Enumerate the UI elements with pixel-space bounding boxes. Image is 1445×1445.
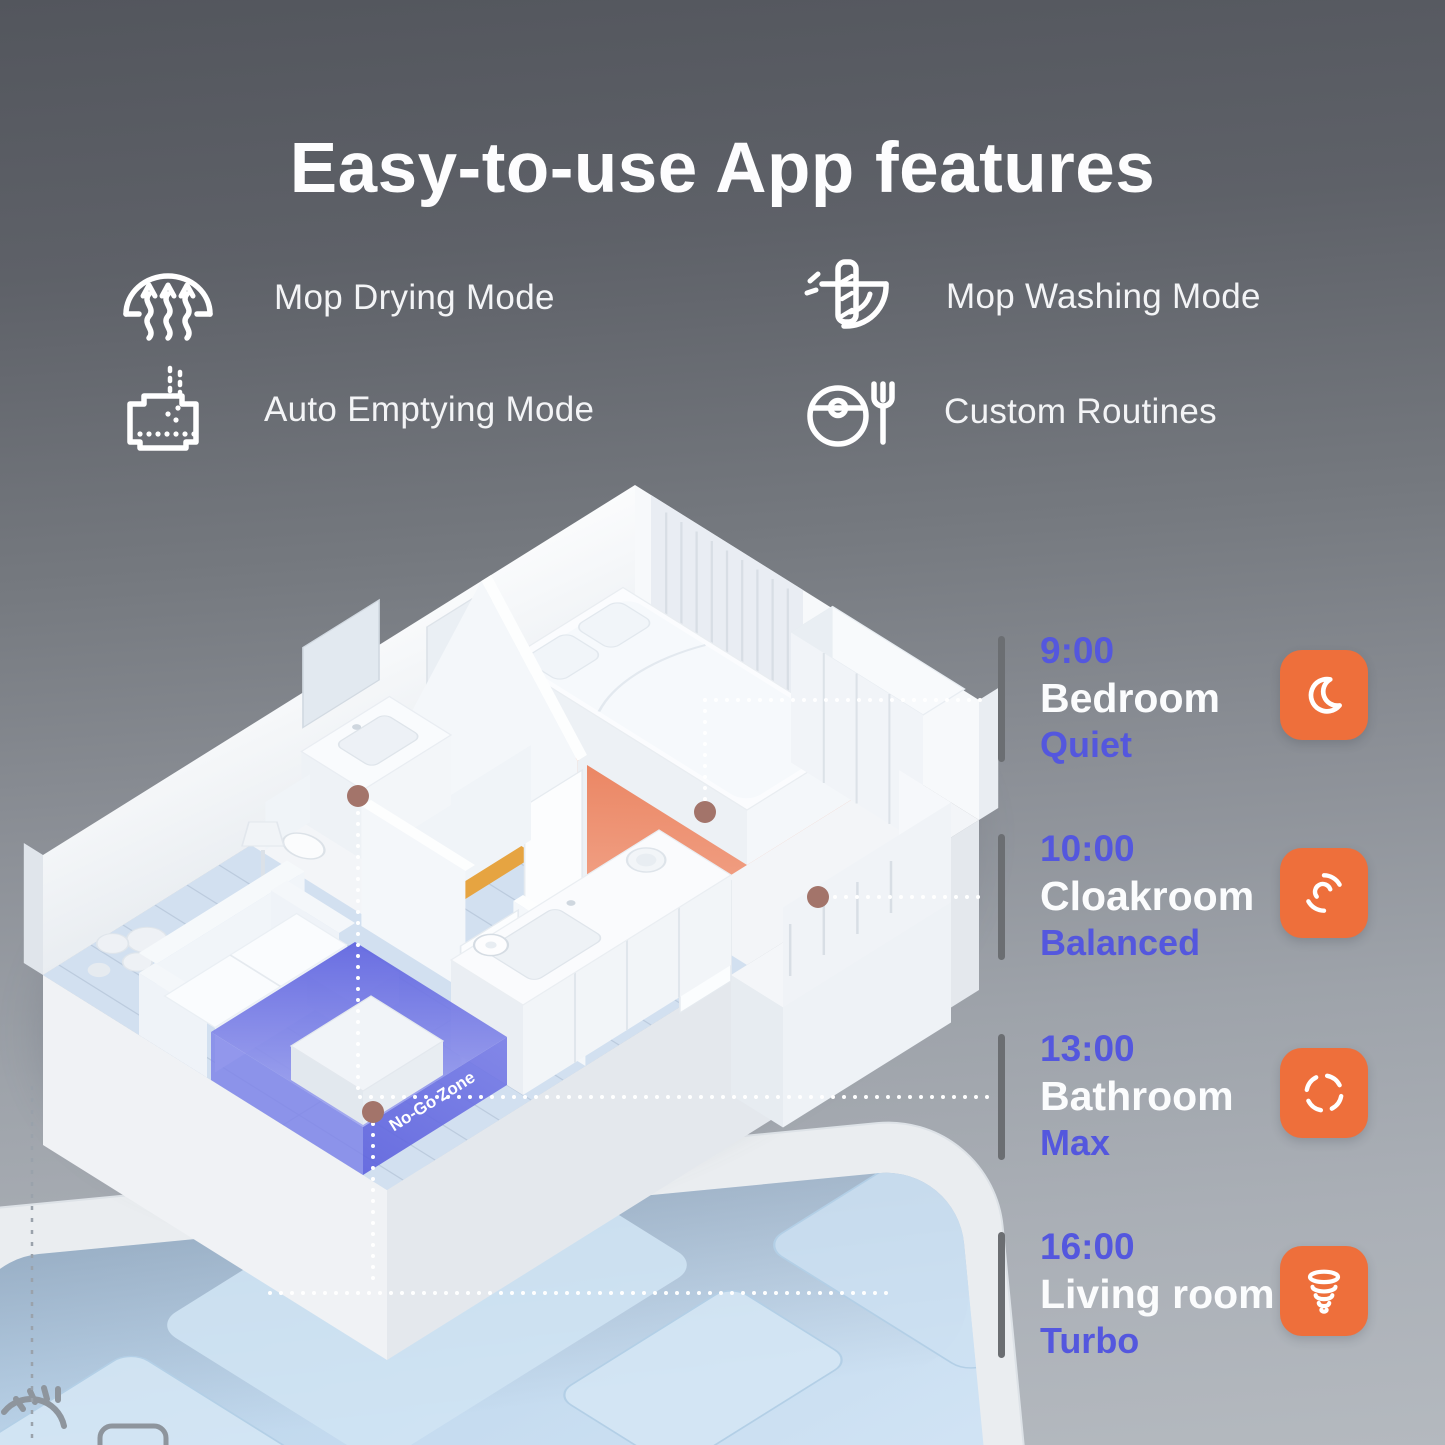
bedroom-marker-dot xyxy=(694,801,716,823)
schedule-timeline-bar xyxy=(998,1034,1005,1160)
schedule-item-cloakroom[interactable]: 10:00 Cloakroom Balanced xyxy=(998,832,1398,964)
bathroom-marker-dot xyxy=(347,785,369,807)
schedule-item-livingroom[interactable]: 16:00 Living room Turbo xyxy=(998,1230,1398,1362)
moon-icon[interactable] xyxy=(1280,650,1368,740)
schedule-mode: Balanced xyxy=(1040,920,1254,966)
feature-label: Custom Routines xyxy=(944,392,1217,432)
schedule-room: Bedroom xyxy=(1040,674,1220,722)
feature-label: Mop Washing Mode xyxy=(946,277,1261,317)
schedule-time: 13:00 xyxy=(1040,1026,1234,1072)
feature-label: Auto Emptying Mode xyxy=(264,390,594,430)
schedule-time: 10:00 xyxy=(1040,826,1254,872)
schedule-timeline-bar xyxy=(998,636,1005,762)
feature-mop-washing: Mop Washing Mode xyxy=(798,252,1398,342)
livingroom-marker-dot xyxy=(362,1101,384,1123)
feature-auto-emptying: Auto Emptying Mode xyxy=(118,362,738,458)
schedule-timeline-bar xyxy=(998,1232,1005,1358)
auto-emptying-icon xyxy=(118,362,214,458)
feature-mop-drying: Mop Drying Mode xyxy=(118,252,678,344)
schedule-room: Living room xyxy=(1040,1270,1275,1318)
cloakroom-marker-dot xyxy=(807,886,829,908)
mop-drying-icon xyxy=(118,252,218,344)
page-title: Easy-to-use App features xyxy=(0,128,1445,209)
schedule-room: Bathroom xyxy=(1040,1072,1234,1120)
schedule-item-bathroom[interactable]: 13:00 Bathroom Max xyxy=(998,1032,1398,1164)
feature-label: Mop Drying Mode xyxy=(274,278,555,318)
feature-custom-routines: Custom Routines xyxy=(804,366,1404,458)
schedule-time: 9:00 xyxy=(1040,628,1220,674)
schedule-timeline-bar xyxy=(998,834,1005,960)
schedule-room: Cloakroom xyxy=(1040,872,1254,920)
schedule-item-bedroom[interactable]: 9:00 Bedroom Quiet xyxy=(998,634,1398,766)
cycle-icon[interactable] xyxy=(1280,1048,1368,1138)
custom-routines-icon xyxy=(804,366,900,458)
mop-washing-icon xyxy=(798,252,894,342)
schedule-mode: Turbo xyxy=(1040,1318,1275,1364)
schedule-time: 16:00 xyxy=(1040,1224,1275,1270)
schedule-mode: Max xyxy=(1040,1120,1234,1166)
swirl-icon[interactable] xyxy=(1280,848,1368,938)
schedule-mode: Quiet xyxy=(1040,722,1220,768)
tornado-icon[interactable] xyxy=(1280,1246,1368,1336)
